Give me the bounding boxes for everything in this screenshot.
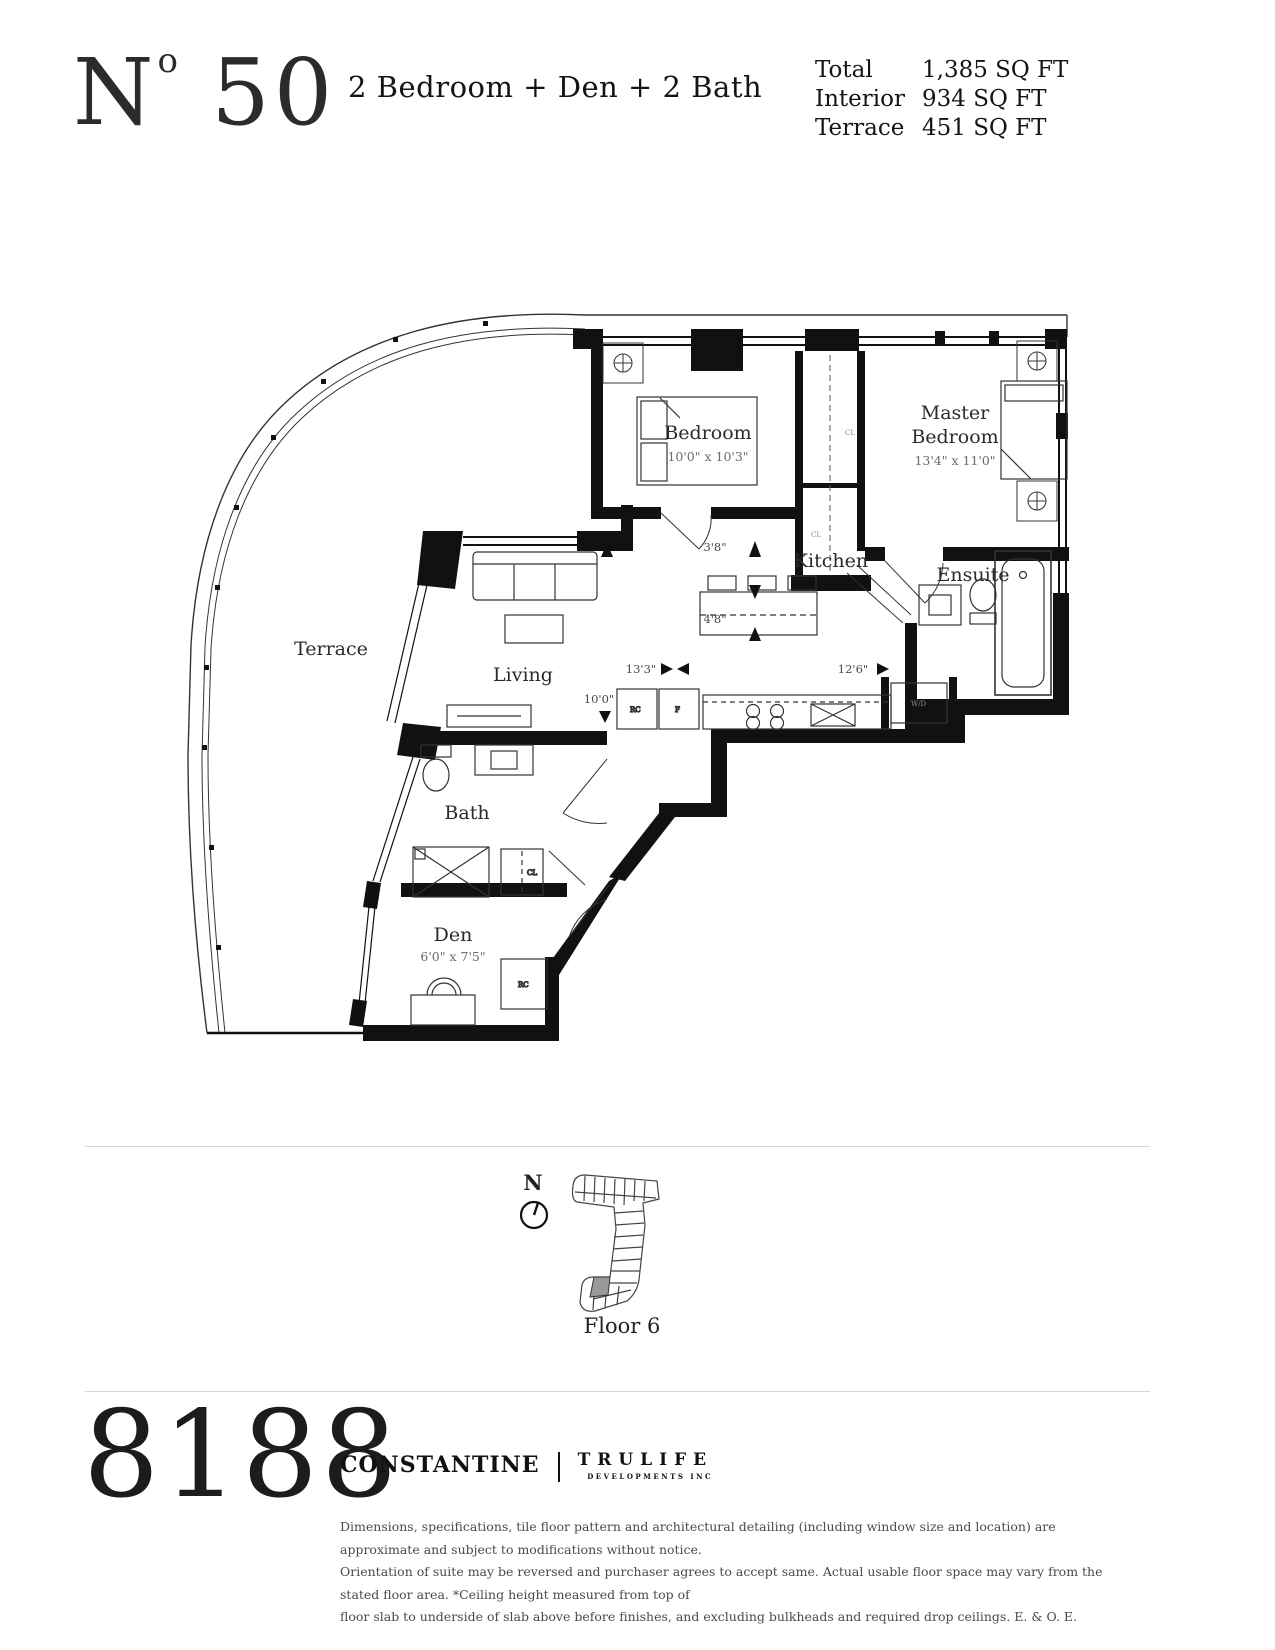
logo-number: 50: [178, 39, 336, 146]
highlighted-unit: [590, 1277, 610, 1297]
floorplan-page: No 50 2 Bedroom + Den + 2 Bath Total 1,3…: [0, 0, 1275, 1650]
terrace-label: Terrace: [294, 638, 368, 660]
disclaimer-line-2: Orientation of suite may be reversed and…: [340, 1561, 1130, 1606]
north-wall-windows: [573, 329, 1067, 371]
kitchen-label: Kitchen: [794, 550, 868, 572]
master-dims: 13'4" x 11'0": [914, 453, 995, 468]
stat-terrace-label: Terrace: [815, 114, 922, 143]
master-label-2: Bedroom: [911, 426, 998, 448]
kitchen-counters: RC F: [617, 689, 891, 730]
dim-13-3: 13'3": [626, 662, 656, 676]
dim-10-0: 10'0": [584, 692, 614, 706]
closet-label-2: CL: [811, 531, 821, 539]
stat-interior-label: Interior: [815, 85, 922, 114]
developer-brands: CONSTANTINE TRULIFE DEVELOPMENTS INC: [340, 1452, 713, 1482]
ensuite-label: Ensuite: [936, 564, 1009, 586]
keyplan-building-outline: [565, 1168, 677, 1320]
den-label: Den: [434, 924, 473, 946]
area-stats: Total 1,385 SQ FT Interior 934 SQ FT Ter…: [815, 56, 1068, 143]
sofa: [473, 552, 597, 600]
stat-terrace: Terrace 451 SQ FT: [815, 114, 1068, 143]
compass-icon: [517, 1198, 551, 1232]
railing-posts: [202, 321, 488, 950]
disclaimer-line-1: Dimensions, specifications, tile floor p…: [340, 1516, 1130, 1561]
stat-total-value: 1,385 SQ FT: [922, 56, 1068, 85]
constantine-logo: CONSTANTINE: [340, 1452, 540, 1478]
suite-number-logo: No 50: [73, 44, 336, 139]
dim-3-8: 3'8": [703, 540, 726, 554]
cl-label-bath: CL: [527, 869, 537, 877]
living-furniture: [447, 552, 597, 727]
closet-corridor: CL CL: [811, 355, 855, 573]
north-label: N: [505, 1170, 561, 1195]
wd-label: W/D: [911, 700, 927, 708]
den-furniture: RC: [411, 959, 547, 1025]
rc-label-kitchen: RC: [630, 706, 641, 714]
bedroom-dims: 10'0" x 10'3": [667, 449, 748, 464]
stat-terrace-value: 451 SQ FT: [922, 114, 1046, 143]
trulife-logo: TRULIFE: [578, 1452, 714, 1469]
trulife-logo-block: TRULIFE DEVELOPMENTS INC: [578, 1452, 714, 1481]
bath-toilet: [423, 759, 449, 791]
bath-label: Bath: [444, 802, 489, 824]
closet-label-1: CL: [845, 429, 855, 437]
divider-top: [85, 1146, 1150, 1147]
logo-degree: o: [158, 41, 178, 81]
disclaimer-text: Dimensions, specifications, tile floor p…: [340, 1516, 1130, 1629]
living-label: Living: [493, 664, 553, 686]
stat-interior: Interior 934 SQ FT: [815, 85, 1068, 114]
stat-interior-value: 934 SQ FT: [922, 85, 1046, 114]
bedroom-label: Bedroom: [664, 422, 751, 444]
stat-total-label: Total: [815, 56, 922, 85]
dim-4-8: 4'8": [703, 612, 726, 626]
den-desk: [411, 995, 475, 1025]
fridge-label: F: [675, 706, 680, 714]
trulife-sub-label: DEVELOPMENTS INC: [578, 1472, 714, 1481]
master-label-1: Master: [921, 402, 990, 424]
stat-total: Total 1,385 SQ FT: [815, 56, 1068, 85]
rc-label-den: RC: [518, 981, 529, 989]
coffee-table: [505, 615, 563, 643]
den-dims: 6'0" x 7'5": [420, 949, 485, 964]
floor-label: Floor 6: [522, 1314, 722, 1338]
disclaimer-line-3: floor slab to underside of slab above be…: [340, 1606, 1130, 1629]
brand-divider: [558, 1452, 560, 1482]
logo-n: N: [73, 39, 158, 146]
page-title: 2 Bedroom + Den + 2 Bath: [348, 70, 762, 104]
terrace-glazing: [357, 537, 633, 1023]
dim-12-6: 12'6": [838, 662, 868, 676]
floorplan-drawing: CL CL: [155, 285, 1075, 1045]
